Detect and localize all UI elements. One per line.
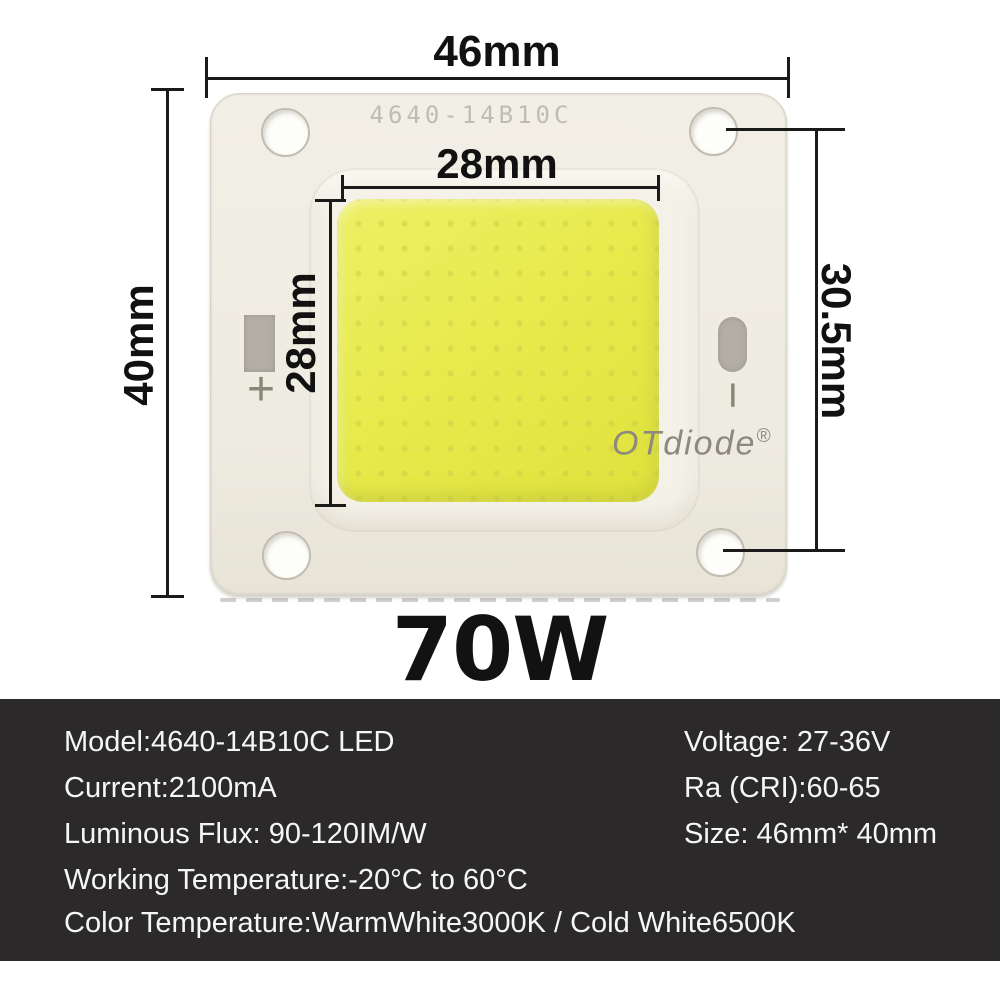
mounting-hole-bottom-left — [262, 531, 311, 580]
emitter-height-dimension-tick-top — [315, 199, 346, 202]
mounting-hole-bottom-right — [696, 528, 745, 577]
spec-current: Current:2100mA — [64, 770, 277, 806]
spec-row: Luminous Flux: 90-120IM/W Size: 46mm* 40… — [0, 816, 1000, 852]
spec-cri: Ra (CRI):60-65 — [684, 770, 881, 806]
emitter-width-dimension-tick-left — [341, 175, 344, 201]
spec-row: Model:4640-14B10C LED Voltage: 27-36V — [0, 724, 1000, 760]
mounting-hole-top-right — [689, 107, 738, 156]
negative-terminal-pad — [718, 317, 747, 372]
total-height-dimension-tick-top — [151, 88, 184, 91]
total-width-dimension-tick-right — [787, 57, 790, 98]
spec-panel: Model:4640-14B10C LED Voltage: 27-36V Cu… — [0, 699, 1000, 961]
total-height-dimension-label: 40mm — [117, 284, 161, 405]
spec-size: Size: 46mm* 40mm — [684, 816, 937, 852]
emitter-height-dimension-line — [329, 201, 332, 506]
emitter-width-dimension-label: 28mm — [347, 142, 647, 186]
hole-span-dimension-label: 30.5mm — [814, 263, 858, 419]
emitter-width-dimension-line — [343, 186, 660, 189]
emitter-height-dimension-tick-bottom — [315, 504, 346, 507]
chip-model-print: 4640-14B10C — [326, 102, 616, 128]
led-emitter-area — [337, 199, 659, 502]
product-spec-image: 46mm 40mm 4640-14B10C 28mm 28mm + − OTdi… — [0, 0, 1000, 1000]
spec-row: Working Temperature:-20°C to 60°C — [0, 862, 1000, 898]
emitter-height-dimension-label: 28mm — [279, 272, 323, 393]
total-width-dimension-tick-left — [205, 57, 208, 98]
spec-voltage: Voltage: 27-36V — [684, 724, 890, 760]
mounting-hole-top-left — [261, 108, 310, 157]
hole-span-leader-bottom — [723, 549, 845, 552]
total-width-dimension-label: 46mm — [205, 30, 789, 74]
total-height-dimension-tick-bottom — [151, 595, 184, 598]
brand-logo: OTdiode® — [612, 419, 770, 461]
spec-color-temperature: Color Temperature:WarmWhite3000K / Cold … — [64, 905, 796, 941]
spec-model: Model:4640-14B10C LED — [64, 724, 394, 760]
spec-row: Current:2100mA Ra (CRI):60-65 — [0, 770, 1000, 806]
spec-working-temperature: Working Temperature:-20°C to 60°C — [64, 862, 528, 898]
spec-row: Color Temperature:WarmWhite3000K / Cold … — [0, 905, 1000, 941]
emitter-width-dimension-tick-right — [657, 175, 660, 201]
registered-trademark-icon: ® — [756, 426, 770, 447]
brand-name: OTdiode — [612, 424, 756, 462]
hole-span-leader-top — [726, 128, 845, 131]
power-rating: 70W — [0, 604, 1000, 696]
spec-luminous-flux: Luminous Flux: 90-120IM/W — [64, 816, 427, 852]
total-height-dimension-line — [166, 90, 169, 598]
total-width-dimension-line — [207, 77, 788, 80]
